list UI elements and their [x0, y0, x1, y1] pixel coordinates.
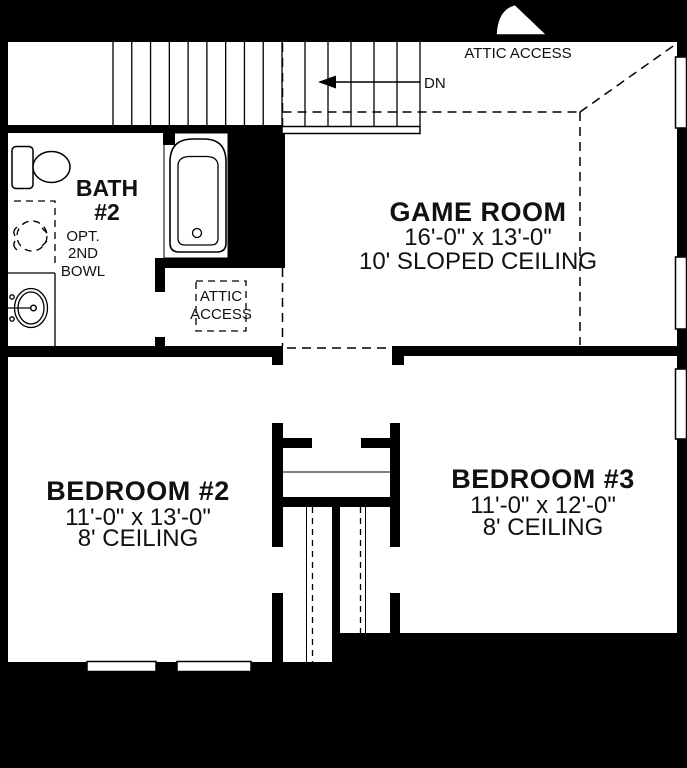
wall-bedroom2-closet — [272, 593, 283, 662]
wall-bedroom3-closet — [390, 423, 400, 547]
opt-tick — [42, 241, 47, 246]
toilet-tank — [12, 147, 33, 189]
wall-stub — [272, 357, 283, 365]
attic-access-box: ATTIC ACCESS — [190, 281, 252, 331]
opt-counter-line — [14, 201, 55, 268]
bath2-label: BATH — [76, 175, 138, 201]
wall-bottom-right — [333, 633, 687, 768]
wall-tub-corner — [163, 125, 175, 145]
wall-right — [677, 127, 687, 259]
wall-tub-surround — [228, 127, 285, 268]
bedroom3-label: BEDROOM #3 — [451, 464, 635, 494]
game-room-ceiling: 10' SLOPED CEILING — [359, 248, 597, 275]
tub-drain — [193, 229, 202, 238]
stair-rail — [282, 127, 420, 134]
window — [676, 369, 687, 439]
opt-2nd-bowl-label: 2ND — [68, 245, 98, 262]
bathtub — [164, 133, 228, 258]
game-room-dimensions: 16'-0" x 13'-0" — [404, 224, 552, 251]
window — [87, 662, 156, 672]
down-arrow — [318, 76, 336, 89]
stairs: DN — [113, 42, 446, 134]
faucet-knob — [10, 295, 14, 299]
sink-drain — [31, 305, 37, 311]
bedroom3-ceiling: 8' CEILING — [483, 514, 604, 541]
wall-bedroom3-closet — [390, 593, 400, 633]
wall-stub — [155, 268, 165, 292]
attic-access-box-label: ATTIC — [200, 288, 242, 305]
window — [676, 57, 687, 128]
ceiling-break-line — [580, 44, 676, 112]
wall-closet-divider — [332, 507, 340, 662]
game-room-label: GAME ROOM — [390, 197, 567, 227]
opt-2nd-bowl-label: BOWL — [61, 263, 105, 280]
bath2-number: #2 — [94, 199, 120, 225]
attic-access-label: ATTIC ACCESS — [464, 45, 571, 62]
wall-gameroom-bottom — [392, 346, 687, 356]
sloped-ceiling-lines — [283, 44, 677, 348]
opt-2nd-bowl-label: OPT. — [66, 228, 99, 245]
opt-faucet-mark — [14, 241, 17, 250]
stair-treads — [113, 42, 420, 127]
wall-bath-bedroom2 — [0, 346, 283, 357]
wall-stub — [155, 337, 165, 347]
floor-plan-canvas: DN ATTIC ACCESS ATTIC ACCESS — [0, 0, 687, 768]
wall-top — [0, 0, 687, 42]
walls — [0, 0, 687, 768]
room-labels: GAME ROOM 16'-0" x 13'-0" 10' SLOPED CEI… — [46, 175, 635, 552]
bedroom2-label: BEDROOM #2 — [46, 476, 230, 506]
wall-below-tub — [155, 258, 285, 268]
closet-door-jamb — [283, 438, 312, 448]
windows — [87, 57, 687, 672]
window — [177, 662, 251, 672]
opt-bowl-outline — [17, 221, 47, 251]
wall-stub — [392, 356, 404, 365]
wall-right — [677, 438, 687, 635]
vanity-sink — [8, 273, 55, 346]
bedroom2-ceiling: 8' CEILING — [78, 525, 199, 552]
window — [676, 257, 687, 329]
toilet-bowl — [33, 152, 70, 183]
faucet-knob — [10, 317, 14, 321]
wall-bedroom2-closet — [272, 423, 283, 547]
toilet — [12, 147, 70, 189]
dn-label: DN — [424, 75, 446, 92]
tub-inner — [178, 157, 218, 246]
attic-access-box-label: ACCESS — [190, 306, 252, 323]
closet-door-jamb — [361, 438, 390, 448]
floor-plan: DN ATTIC ACCESS ATTIC ACCESS — [0, 0, 687, 768]
optional-second-bowl — [14, 201, 55, 268]
wall-closet-mid — [283, 497, 390, 507]
